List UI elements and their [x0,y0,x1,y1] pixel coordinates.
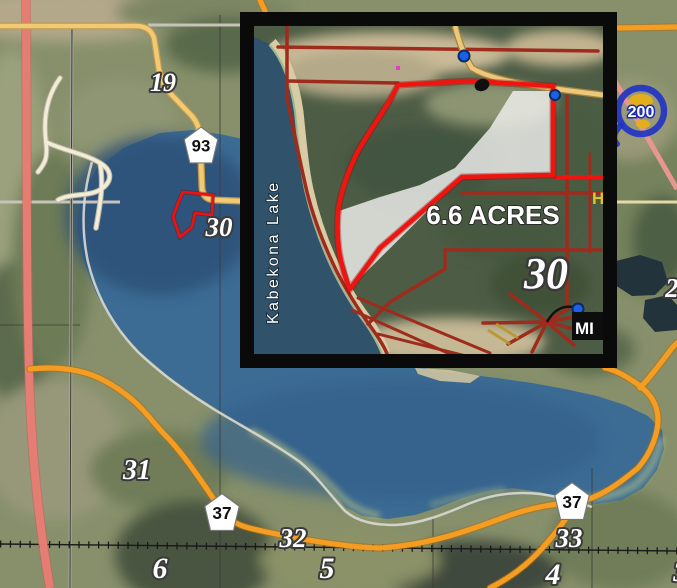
section-label-19: 19 [150,68,176,97]
svg-text:37: 37 [562,492,581,512]
section-label-31: 31 [122,455,151,486]
inset-lake-label: Kabekona Lake [265,180,282,324]
section-label-6: 6 [153,552,168,585]
svg-text:200: 200 [628,104,655,121]
acreage-label: 6.6 ACRES [426,200,559,230]
map-screenshot: 19 30 31 32 33 6 5 4 2 3 93 37 37 200 [0,0,677,588]
section-label-32: 32 [279,523,307,553]
svg-text:37: 37 [212,503,231,523]
blue-dot-marker [550,90,560,100]
mi-label: MI [575,319,594,338]
inset-section-label-30: 30 [523,249,568,298]
parcel-inset-map: MI H Kabekona Lake 6.6 ACRES 30 [240,12,617,368]
section-label-5: 5 [320,552,335,585]
section-label-33: 33 [555,523,583,553]
section-label-3-clipped: 3 [672,557,677,587]
magenta-dot-marker [396,66,400,70]
svg-text:93: 93 [192,137,211,156]
section-label-4: 4 [545,558,561,588]
blue-dot-marker [459,51,470,62]
section-label-30: 30 [205,212,234,242]
h-edge-label: H [592,189,604,208]
section-label-2-clipped: 2 [664,273,677,303]
